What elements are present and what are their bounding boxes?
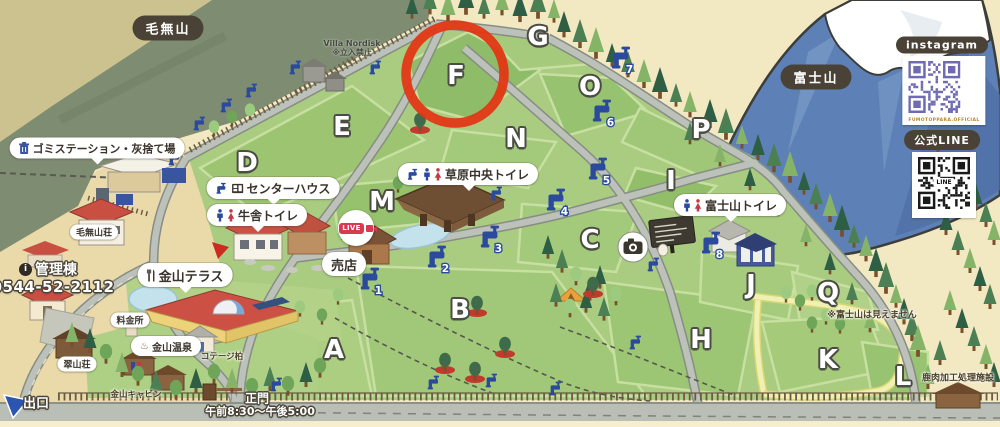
fee-station-text: 料金所 [116, 314, 143, 327]
mt-kenashi-label: 毛無山 [132, 16, 203, 41]
water-tap [287, 59, 306, 83]
villa-nordisk-text: Villa Nordisk [323, 39, 380, 48]
svg-text:7: 7 [626, 63, 633, 76]
svg-text:8: 8 [716, 248, 723, 261]
svg-text:4: 4 [561, 205, 568, 218]
shop-label[interactable]: 売店 [322, 252, 366, 276]
boundary-road [0, 403, 1000, 421]
svg-text:2: 2 [442, 262, 449, 275]
mt-fuji-label: 富士山 [780, 65, 851, 90]
water-tap [218, 97, 237, 121]
svg-text:5: 5 [603, 174, 610, 187]
suizan-sou-label[interactable]: 翠山荘 [57, 357, 96, 372]
deer-processing-label: 鹿肉加工処理施設 [922, 371, 994, 384]
area-label-O[interactable]: O [579, 72, 601, 102]
area-label-A[interactable]: A [324, 335, 344, 365]
mascot-figure [658, 244, 668, 256]
villa-nordisk-label: Villa Nordisk ※立入禁止 [323, 39, 380, 57]
male-icon [683, 199, 691, 212]
water-tap [645, 256, 664, 280]
female-icon [694, 199, 702, 212]
area-label-L[interactable]: L [895, 362, 912, 392]
female-icon [434, 168, 442, 181]
instagram-qr-code[interactable]: FUMOTOPPARA.OFFICIAL [902, 56, 985, 125]
garbage-station-text: ゴミステーション・灰捨て場 [33, 140, 176, 156]
admin-building-label: i 管理棟 [19, 259, 77, 279]
live-text: LIVE [339, 223, 363, 234]
cowshed-toilet-text: 牛舎トイレ [238, 207, 298, 224]
live-camera-icon [366, 225, 373, 232]
fork-knife-icon [147, 269, 156, 282]
area-label-Q[interactable]: Q [817, 278, 839, 308]
photo-spot-icon [618, 232, 648, 262]
hot-spring-icon: ♨ [140, 341, 149, 352]
grass-central-toilet-text: 草原中央トイレ [445, 166, 529, 183]
area-label-D[interactable]: D [236, 148, 258, 178]
info-icon: i [19, 263, 32, 276]
area-label-K[interactable]: K [818, 345, 838, 375]
area-label-B[interactable]: B [450, 295, 470, 325]
fee-station-label[interactable]: 料金所 [110, 313, 149, 328]
water-tap [627, 334, 646, 358]
kanayama-onsen-text: 金山温泉 [152, 339, 192, 354]
fumotoppara-campground-map: 毛無山 富士山 instagram 公式LINE FUMOTOPPARA.OFF… [0, 0, 1000, 427]
area-label-J[interactable]: J [746, 270, 756, 300]
fee-booth [126, 326, 137, 336]
water-tap-2: 2 [423, 243, 453, 279]
admin-building-text: 管理棟 [35, 259, 77, 279]
water-tap [367, 59, 386, 83]
area-label-I[interactable]: I [666, 166, 676, 196]
faucet-icon [216, 182, 229, 195]
water-tap [268, 376, 287, 400]
water-tap [425, 374, 444, 398]
area-label-H[interactable]: H [690, 325, 712, 355]
map-margin [0, 421, 1000, 427]
map-illustration [0, 0, 1000, 427]
area-label-E[interactable]: E [333, 112, 351, 142]
center-house-label[interactable]: センターハウス [207, 177, 340, 199]
kanayama-terrace-label[interactable]: 金山テラス [138, 263, 233, 287]
svg-text:3: 3 [495, 242, 502, 255]
instagram-label: instagram [896, 37, 988, 54]
area-label-M[interactable]: M [369, 187, 395, 217]
water-tap-4: 4 [542, 186, 572, 222]
trash-icon [19, 142, 30, 155]
faucet-icon [407, 168, 420, 181]
exit-label: 出口 [23, 393, 49, 412]
kenashi-sou-text: 毛無山荘 [76, 226, 112, 239]
line-label: 公式LINE [904, 130, 980, 150]
grass-central-toilet-label[interactable]: 草原中央トイレ [398, 163, 538, 185]
villa-note-text: ※立入禁止 [323, 48, 380, 57]
gate-hours: 午前8:30〜午後5:00 [205, 403, 315, 419]
center-house-text: センターハウス [247, 180, 331, 197]
kanayama-onsen-label[interactable]: ♨ 金山温泉 [131, 336, 201, 356]
area-label-N[interactable]: N [505, 124, 527, 154]
svg-text:6: 6 [607, 116, 614, 129]
water-tap [488, 185, 507, 209]
water-tap-3: 3 [476, 223, 506, 259]
admin-phone: 0544-52-2112 [0, 278, 114, 296]
area-label-C[interactable]: C [580, 225, 599, 255]
kenashi-sou-label[interactable]: 毛無山荘 [70, 225, 118, 240]
shop-text: 売店 [331, 255, 357, 274]
fuji-toilet-text: 富士山トイレ [705, 197, 777, 214]
cowshed-toilet-label[interactable]: 牛舎トイレ [207, 204, 307, 226]
cottage-kashiwa-label: コテージ柏 [201, 350, 243, 362]
kanayama-cabin-label: 金山キャビン [110, 388, 161, 400]
male-icon [216, 209, 224, 222]
suizan-sou-text: 翠山荘 [63, 358, 90, 371]
water-tap-6: 6 [588, 97, 618, 133]
line-qr-code[interactable]: LINE [912, 152, 976, 218]
instagram-account: FUMOTOPPARA.OFFICIAL [908, 118, 979, 123]
male-icon [423, 168, 431, 181]
water-tap [547, 380, 566, 404]
fuji-toilet-label[interactable]: 富士山トイレ [674, 194, 786, 216]
garbage-station-label[interactable]: ゴミステーション・灰捨て場 [10, 138, 185, 159]
water-tap [191, 115, 210, 139]
water-tap-5: 5 [584, 155, 614, 191]
water-tap [243, 82, 262, 106]
area-label-P[interactable]: P [691, 115, 710, 145]
kanayama-terrace-text: 金山テラス [159, 266, 224, 285]
water-tap [483, 372, 502, 396]
svg-text:1: 1 [375, 284, 382, 297]
area-label-F[interactable]: F [447, 61, 465, 91]
line-logo: LINE [933, 178, 954, 187]
area-label-G[interactable]: G [527, 22, 548, 52]
water-tap-8: 8 [697, 229, 727, 265]
water-tap-7: 7 [607, 44, 637, 80]
no-fuji-view-note: ※富士山は見えません [827, 308, 916, 321]
live-camera-badge[interactable]: LIVE [338, 210, 374, 246]
female-icon [227, 209, 235, 222]
store-icon [232, 183, 244, 194]
